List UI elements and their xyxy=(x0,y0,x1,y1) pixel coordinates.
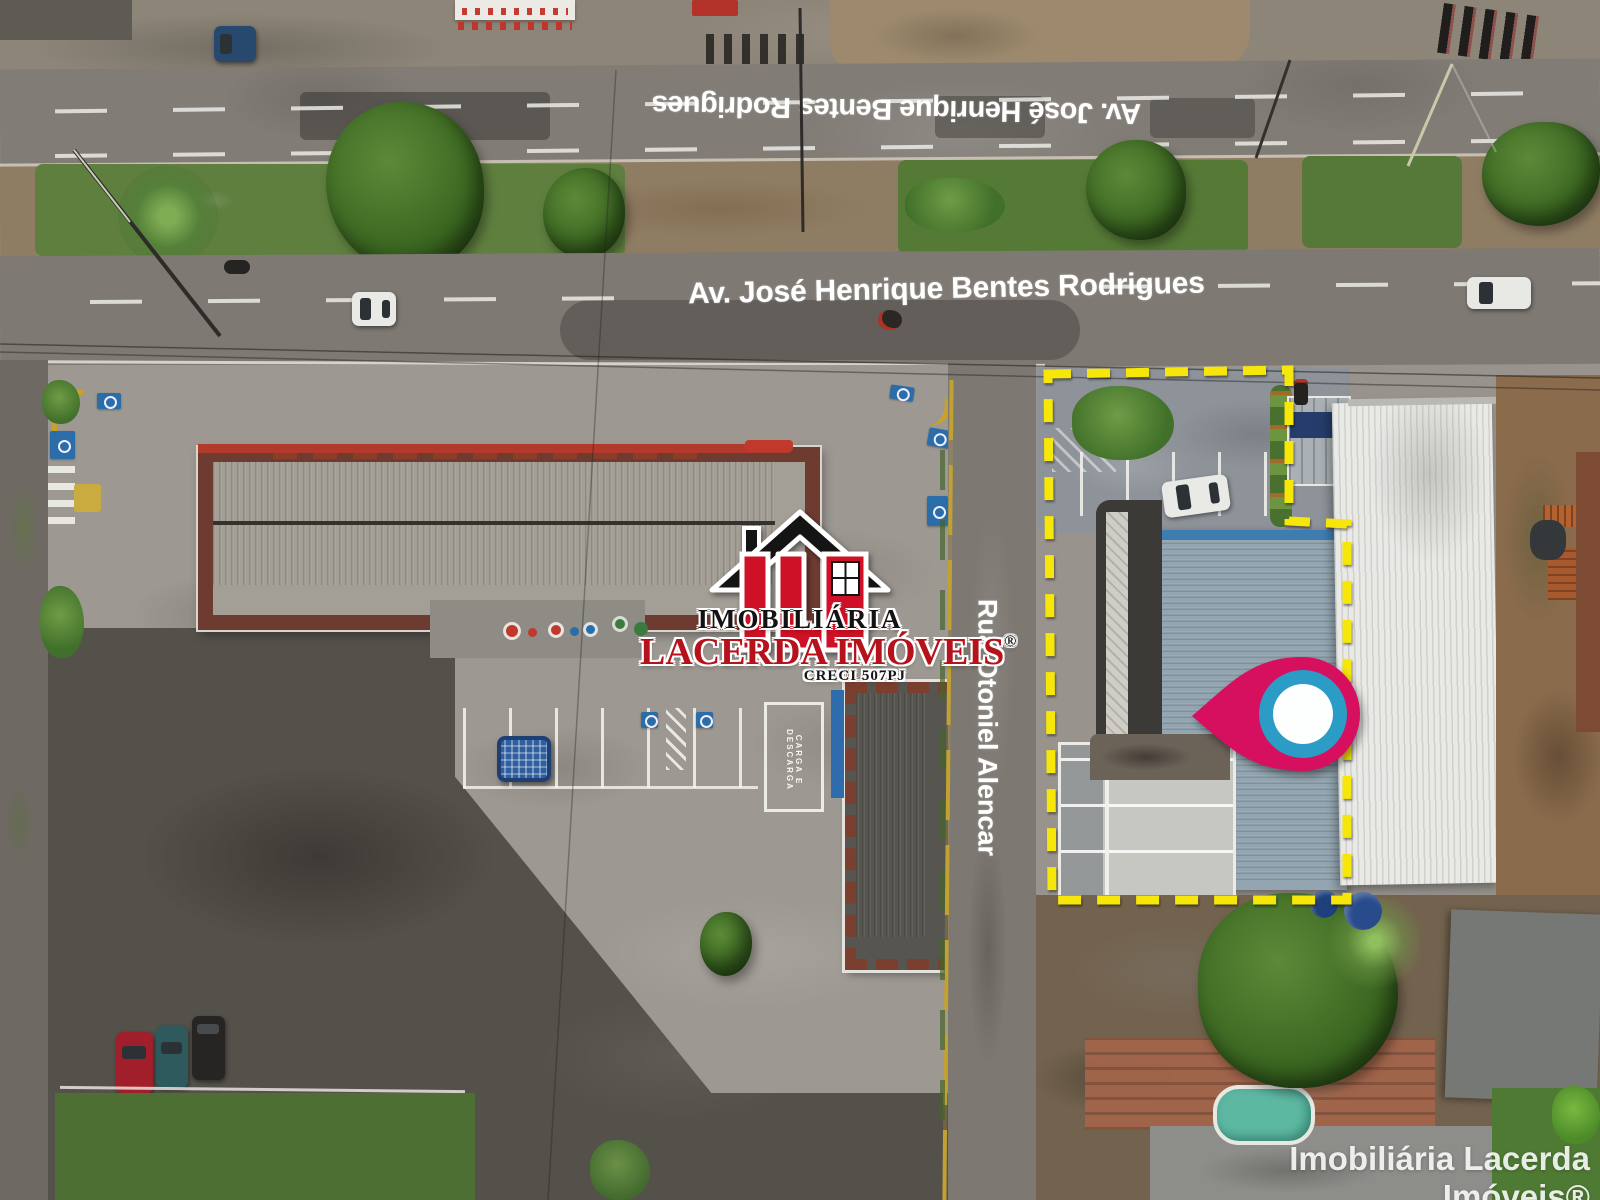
watermark: Imobiliária Lacerda Imóveis® xyxy=(1200,1140,1590,1200)
location-pin-icon xyxy=(1192,657,1360,771)
annotation-overlay xyxy=(0,0,1600,1200)
aerial-photo: Av. José Henrique Bentes Rodrigues Av. J… xyxy=(0,0,1600,1200)
leaning-pole xyxy=(1256,60,1290,158)
property-outline xyxy=(1048,370,1347,900)
power-line xyxy=(0,344,1600,378)
street-light-pole xyxy=(800,8,803,232)
logo-creci: CRECI 507PJ xyxy=(700,668,906,685)
leaning-pole xyxy=(1408,64,1452,166)
power-line xyxy=(548,70,616,1200)
logo-line2: LACERDA IMÓVEIS xyxy=(640,631,1004,673)
power-line xyxy=(0,352,1600,390)
leaning-pole-shadow xyxy=(1452,64,1496,152)
leaning-pole-glint xyxy=(74,150,130,222)
registered-mark: ® xyxy=(1004,633,1016,650)
